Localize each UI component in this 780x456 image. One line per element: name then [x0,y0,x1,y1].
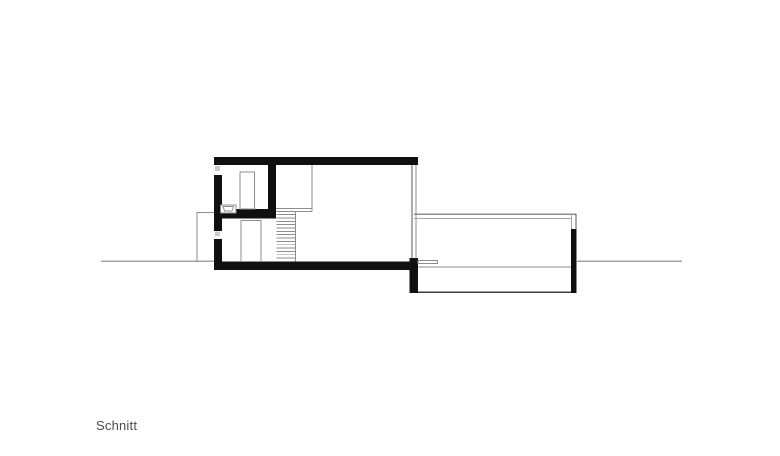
foundation-column [410,258,419,293]
door-lower [241,221,261,262]
window-upper [214,165,222,175]
main-building [214,157,418,293]
washbasin [221,205,237,213]
annex-wing [414,213,577,293]
roof-slab [214,157,418,165]
left-wall [214,164,222,270]
annex-interior [418,213,577,293]
architectural-section-page: Schnitt [0,0,780,456]
washbasin-body [221,205,237,213]
site-wall-left [197,212,214,261]
window-lower-glazing [215,232,220,236]
annex-ledge [418,261,438,264]
drawing-caption: Schnitt [96,418,137,433]
window-upper-glazing [215,166,220,171]
interior-wall [268,164,276,219]
ground-floor-slab [214,261,410,270]
door-upper [240,172,255,209]
section-drawing [0,0,780,456]
annex-right-wall-solid [571,229,577,293]
window-lower [214,231,222,239]
